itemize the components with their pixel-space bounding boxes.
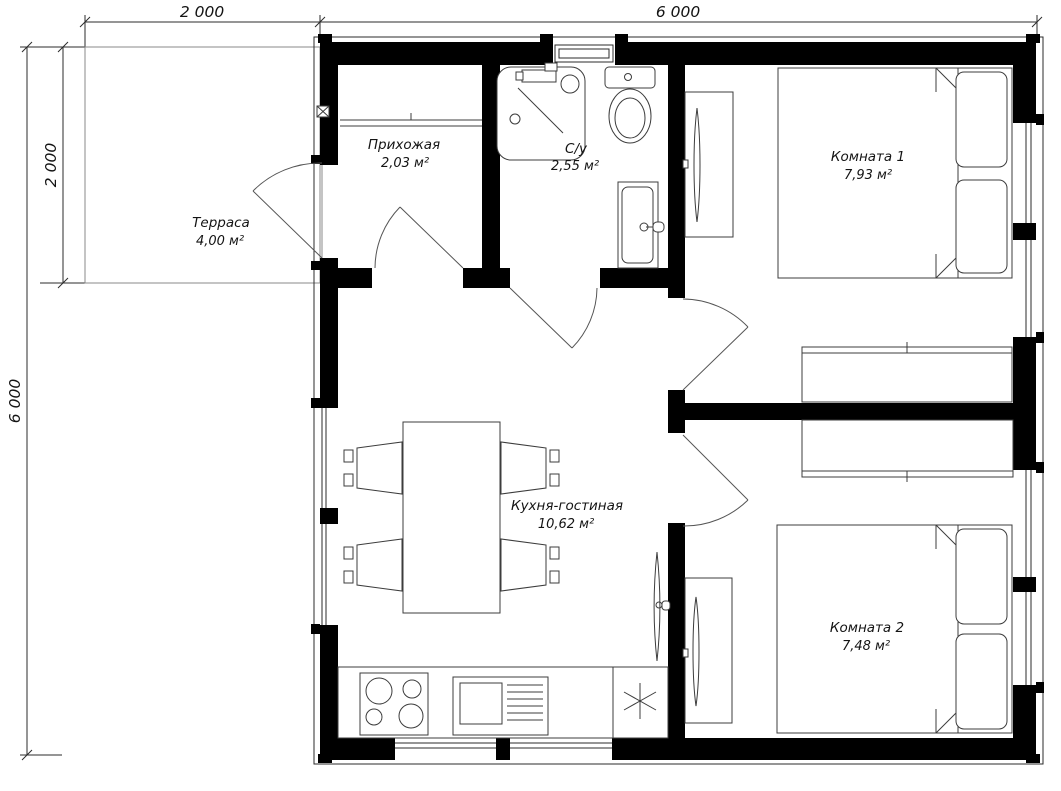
corner-nub	[1026, 754, 1040, 763]
room1-closet	[802, 347, 1012, 402]
chair	[501, 539, 559, 591]
hallway-door-swing-arc	[375, 207, 400, 268]
room1-wardrobe	[685, 92, 733, 237]
shower-knob	[545, 63, 557, 71]
wall-h1-center	[463, 268, 510, 288]
kitchen-furniture	[338, 422, 670, 738]
hallway-door-leaf	[400, 207, 463, 268]
shower-knob	[516, 72, 523, 80]
dim-label-house-height: 6 000	[6, 379, 24, 424]
hallway-label: Прихожая	[368, 137, 440, 153]
dim-label-terrace-height: 2 000	[42, 143, 60, 188]
hallway-area: 2,03 м²	[381, 156, 429, 171]
room2-wardrobe	[685, 578, 732, 723]
floor-plan-svg: 2 000 6 000 6 000 2 000	[0, 0, 1061, 791]
floor-plan-page: 2 000 6 000 6 000 2 000	[0, 0, 1061, 791]
washbasin-tap	[653, 222, 664, 232]
wall-top-left	[320, 42, 553, 65]
window-casing-nub	[311, 398, 320, 408]
washbasin-cabinet	[618, 182, 658, 268]
chair	[344, 442, 402, 494]
room2-door-swing-arc	[683, 500, 748, 526]
room2-closet	[802, 420, 1013, 477]
wall-right-upper	[1013, 42, 1036, 123]
kitchen-label: Кухня-гостиная	[511, 498, 623, 514]
corner-nub	[318, 34, 332, 43]
entrance-door-leaf	[253, 191, 322, 258]
dim-label-terrace-width: 2 000	[180, 3, 225, 21]
room2-area: 7,48 м²	[842, 639, 890, 654]
kitchen-counter	[338, 667, 668, 738]
fridge-asterisk-icon	[624, 683, 656, 719]
room2-pillow	[956, 529, 1007, 624]
bathroom-area: 2,55 м²	[551, 159, 599, 174]
window-casing-nub	[311, 624, 320, 634]
room1-furniture	[683, 68, 1012, 402]
room1-pillow	[956, 72, 1007, 167]
room2-wardrobe-knob	[683, 649, 688, 657]
window-casing-nub	[1036, 332, 1044, 343]
kitchen-area: 10,62 м²	[538, 517, 594, 532]
window-casing-nub	[1036, 462, 1044, 473]
room1-pillow	[956, 180, 1007, 273]
window-casing-nub	[615, 34, 628, 43]
door-casing-nub	[311, 261, 320, 270]
corner-nub	[1026, 34, 1040, 43]
chair	[344, 539, 402, 591]
window-room1-mullion	[1013, 223, 1036, 240]
dining-table	[403, 422, 500, 613]
oven	[453, 677, 548, 735]
window-bathroom-glass	[559, 49, 609, 58]
entrance-door-swing-arc	[253, 163, 322, 191]
window-casing-nub	[1036, 682, 1044, 693]
kitchen-mirror-bracket	[656, 602, 662, 608]
room2-door-leaf	[683, 435, 748, 500]
wall-right-middle	[1013, 337, 1036, 470]
window-casing-nub	[1036, 114, 1044, 125]
wall-room1-room2	[668, 403, 1013, 420]
wall-kitchen-room2	[668, 523, 685, 738]
burner	[399, 704, 423, 728]
room2-furniture	[683, 420, 1013, 733]
wall-bottom-right	[612, 738, 1036, 760]
wall-bath-room1	[668, 65, 685, 298]
room1-label: Комната 1	[831, 149, 905, 165]
window-room2-mullion	[1013, 577, 1036, 592]
wall-left-middle	[320, 258, 338, 408]
hallway-furniture	[317, 106, 482, 126]
room1-door-swing-arc	[683, 299, 748, 327]
room1-door-leaf	[683, 327, 748, 390]
wall-h1-right	[600, 268, 670, 288]
terrace-area: 4,00 м²	[196, 234, 244, 249]
window-casing-nub	[540, 34, 553, 43]
room1-area: 7,93 м²	[844, 168, 892, 183]
room2-label: Комната 2	[830, 620, 904, 636]
wall-top-right	[615, 42, 1036, 65]
bathroom-door-swing-arc	[572, 288, 597, 348]
stove	[360, 673, 428, 735]
toilet-tank	[605, 67, 655, 88]
room1-wardrobe-knob	[683, 160, 688, 168]
shower-mixer	[522, 70, 556, 82]
terrace-label: Терраса	[192, 215, 250, 231]
window-kitchen-bottom-mullion	[496, 738, 510, 760]
window-kitchen-left-mullion	[320, 508, 338, 524]
shower-head	[561, 75, 579, 93]
burner	[403, 680, 421, 698]
bathroom-door-leaf	[510, 288, 572, 348]
room2-pillow	[956, 634, 1007, 729]
corner-nub	[318, 754, 332, 763]
chair	[501, 442, 559, 494]
kitchen-mirror-bracket	[662, 601, 670, 610]
burner	[366, 709, 382, 725]
bathroom-label: С/у	[565, 141, 588, 157]
burner	[366, 678, 392, 704]
wall-h1-left	[338, 268, 372, 288]
dim-label-house-width: 6 000	[656, 3, 701, 21]
window-bathroom-frame	[555, 45, 613, 62]
